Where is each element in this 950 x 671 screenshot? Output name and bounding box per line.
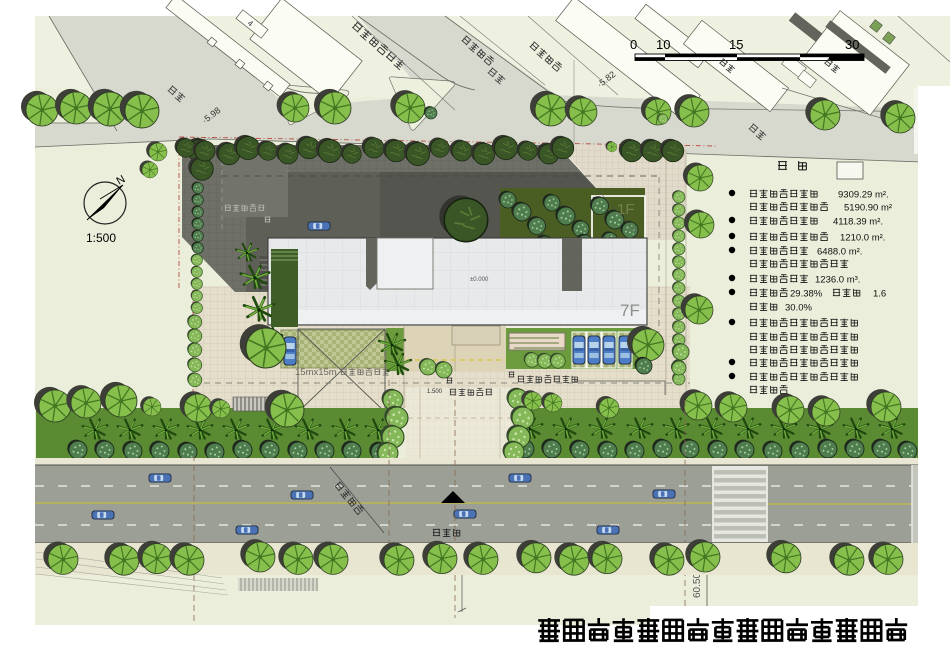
svg-text:1.6: 1.6	[873, 289, 886, 300]
svg-text:0: 0	[630, 37, 637, 52]
svg-text:1236.0 m³.: 1236.0 m³.	[815, 275, 860, 286]
svg-text:1.500: 1.500	[427, 389, 443, 395]
svg-text:5190.90 m²: 5190.90 m²	[844, 203, 892, 214]
svg-text:1F: 1F	[617, 201, 635, 218]
svg-text:15mx15m: 15mx15m	[295, 367, 337, 378]
svg-text:6488.0 m².: 6488.0 m².	[817, 247, 862, 258]
svg-text:1:500: 1:500	[86, 231, 116, 245]
svg-text:29.38%: 29.38%	[790, 289, 823, 300]
svg-text:15: 15	[729, 37, 743, 52]
svg-text:1210.0 m².: 1210.0 m².	[840, 233, 885, 244]
svg-text:10: 10	[656, 37, 670, 52]
svg-text:7F: 7F	[620, 301, 640, 320]
svg-text:9309.29 m².: 9309.29 m².	[838, 190, 889, 201]
svg-text:30.0%: 30.0%	[785, 303, 812, 314]
svg-text:30: 30	[845, 37, 859, 52]
svg-text:4118.39 m².: 4118.39 m².	[833, 217, 883, 228]
svg-text:±0.000: ±0.000	[470, 277, 489, 283]
svg-text:60.50: 60.50	[692, 573, 703, 598]
